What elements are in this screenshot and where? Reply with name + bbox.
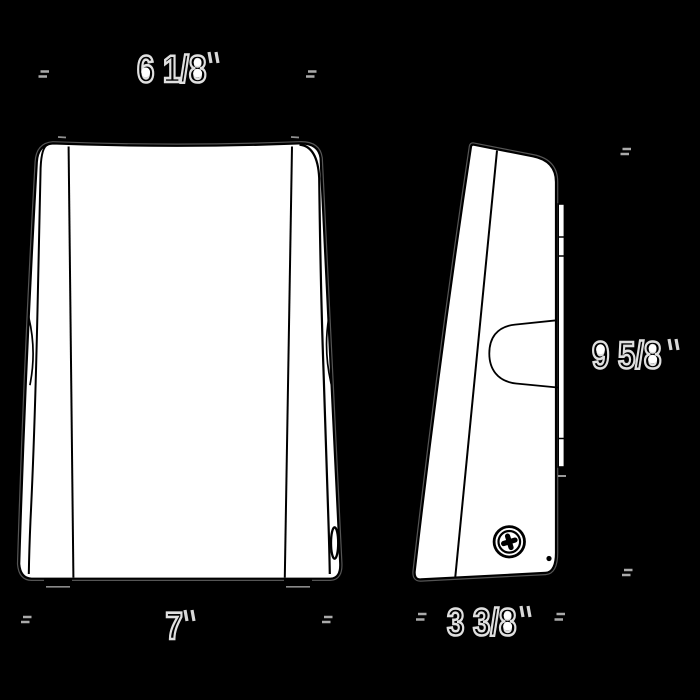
svg-text:7: 7 [166,606,183,648]
